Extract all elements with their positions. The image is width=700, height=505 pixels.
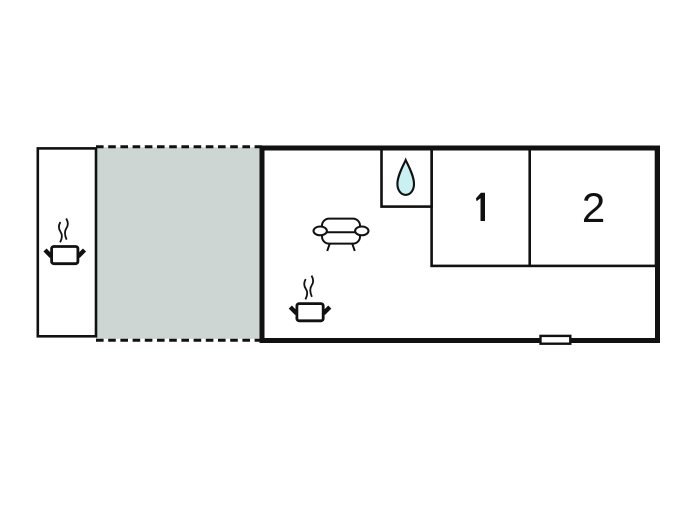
svg-text:2: 2: [582, 184, 605, 231]
